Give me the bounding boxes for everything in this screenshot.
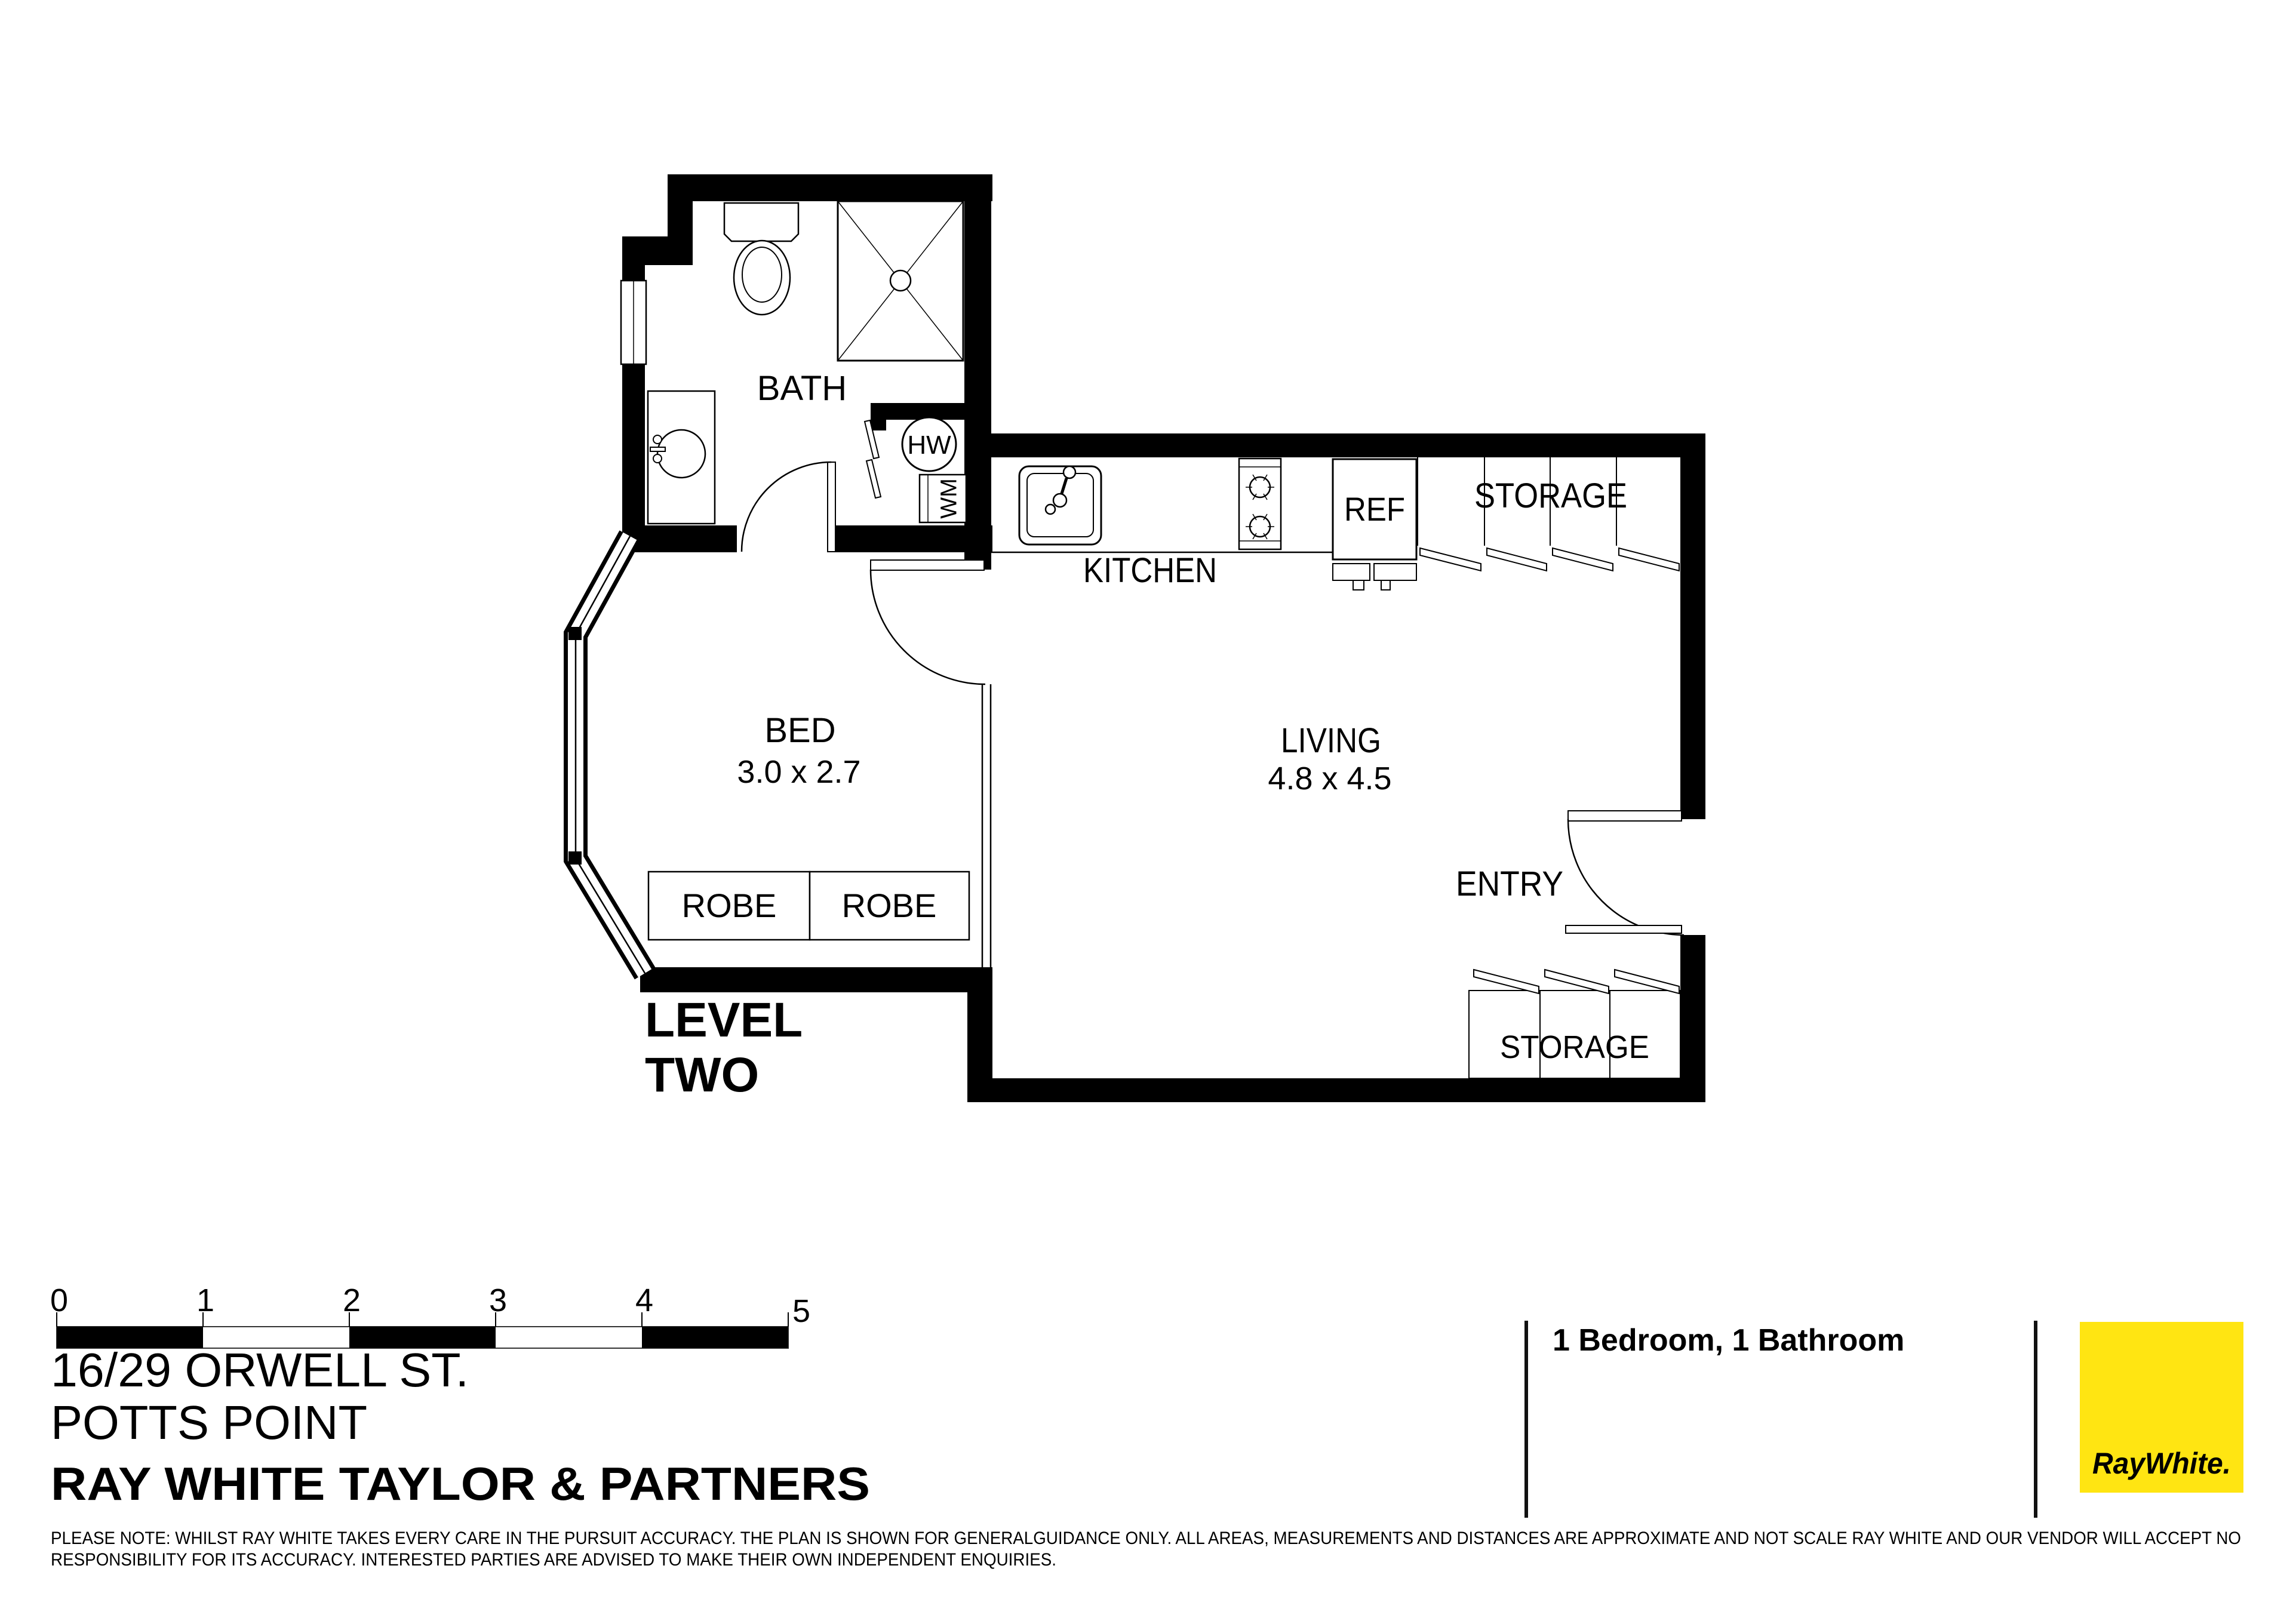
level-label-line2: TWO: [645, 1048, 759, 1102]
entry-door: [1566, 811, 1684, 935]
level-label-line1: LEVEL: [645, 993, 803, 1047]
scale-tick-5: 5: [792, 1293, 810, 1329]
storage-top: STORAGE: [1418, 457, 1679, 571]
refrigerator: REF: [1333, 459, 1416, 590]
scale-tick-0: 0: [50, 1282, 68, 1318]
bed-label: BED: [764, 711, 835, 750]
disclaimer-line1: PLEASE NOTE: WHILST RAY WHITE TAKES EVER…: [51, 1528, 2241, 1548]
address-line1: 16/29 ORWELL ST.: [51, 1343, 469, 1397]
wall-living-right-upper: [1680, 433, 1705, 819]
bed-living-partition: [982, 684, 991, 967]
bay-window: [568, 536, 645, 973]
wall-bath-top: [668, 174, 992, 201]
raywhite-logo: RayWhite.: [2080, 1322, 2243, 1493]
entry-label: ENTRY: [1456, 865, 1563, 903]
bed-door: [871, 560, 985, 684]
hot-water-unit: HW: [902, 417, 956, 471]
living-label: LIVING: [1281, 721, 1381, 760]
wall-living-right-lower: [1680, 935, 1705, 1102]
footer-divider-right: [2034, 1321, 2037, 1518]
robe-left-label: ROBE: [682, 887, 777, 924]
shower: [838, 201, 963, 361]
robes: ROBE ROBE: [648, 872, 969, 940]
hw-label: HW: [907, 430, 951, 460]
wall-bed-bottom: [640, 967, 967, 992]
wall-living-top: [991, 433, 1705, 457]
toilet: [724, 203, 798, 315]
wall-bed-living-lower: [967, 967, 992, 1102]
bed-bath-summary: 1 Bedroom, 1 Bathroom: [1553, 1323, 1904, 1358]
wall-closet-stub: [871, 403, 886, 430]
storage-bottom: STORAGE: [1469, 970, 1680, 1078]
scale-tick-4: 4: [635, 1282, 653, 1318]
raywhite-logo-text: RayWhite.: [2092, 1447, 2231, 1480]
vanity-basin: [648, 391, 715, 524]
wall-bath-left-step: [622, 236, 693, 265]
living-dims-label: 4.8 x 4.5: [1268, 761, 1391, 796]
wall-bath-bottom-left: [622, 525, 737, 552]
footer-divider-left: [1524, 1321, 1528, 1518]
bath-label: BATH: [757, 369, 847, 408]
wall-living-bottom: [967, 1078, 1705, 1102]
footer: 16/29 ORWELL ST. POTTS POINT RAY WHITE T…: [51, 1321, 2243, 1570]
floor-plan-page: HW WM REF: [0, 0, 2293, 1621]
ref-label: REF: [1344, 490, 1405, 528]
wall-bath-right: [964, 174, 991, 570]
bath-left-window: [621, 281, 646, 364]
kitchen-sink: [1019, 466, 1101, 545]
bed-dims-label: 3.0 x 2.7: [737, 754, 860, 790]
floor-plan-svg: HW WM REF: [0, 0, 2293, 1621]
scale-bar: 0 1 2 3 4 5: [50, 1282, 810, 1348]
kitchen-label: KITCHEN: [1083, 551, 1217, 590]
scale-tick-2: 2: [343, 1282, 361, 1318]
agency-name: RAY WHITE TAYLOR & PARTNERS: [51, 1457, 870, 1510]
disclaimer-line2: RESPONSIBILITY FOR ITS ACCURACY. INTERES…: [51, 1550, 1056, 1570]
bath-door: [742, 462, 835, 552]
storage-bottom-label: STORAGE: [1500, 1029, 1649, 1065]
closet-bifold-door: [865, 420, 881, 498]
scale-tick-1: 1: [196, 1282, 214, 1318]
address-line2: POTTS POINT: [51, 1396, 367, 1449]
cooktop: [1239, 459, 1281, 549]
scale-tick-3: 3: [489, 1282, 507, 1318]
robe-right-label: ROBE: [842, 887, 937, 924]
storage-top-label: STORAGE: [1474, 476, 1627, 515]
washing-machine: WM: [920, 475, 966, 522]
wm-label: WM: [936, 478, 961, 519]
walls: [622, 174, 1705, 1102]
